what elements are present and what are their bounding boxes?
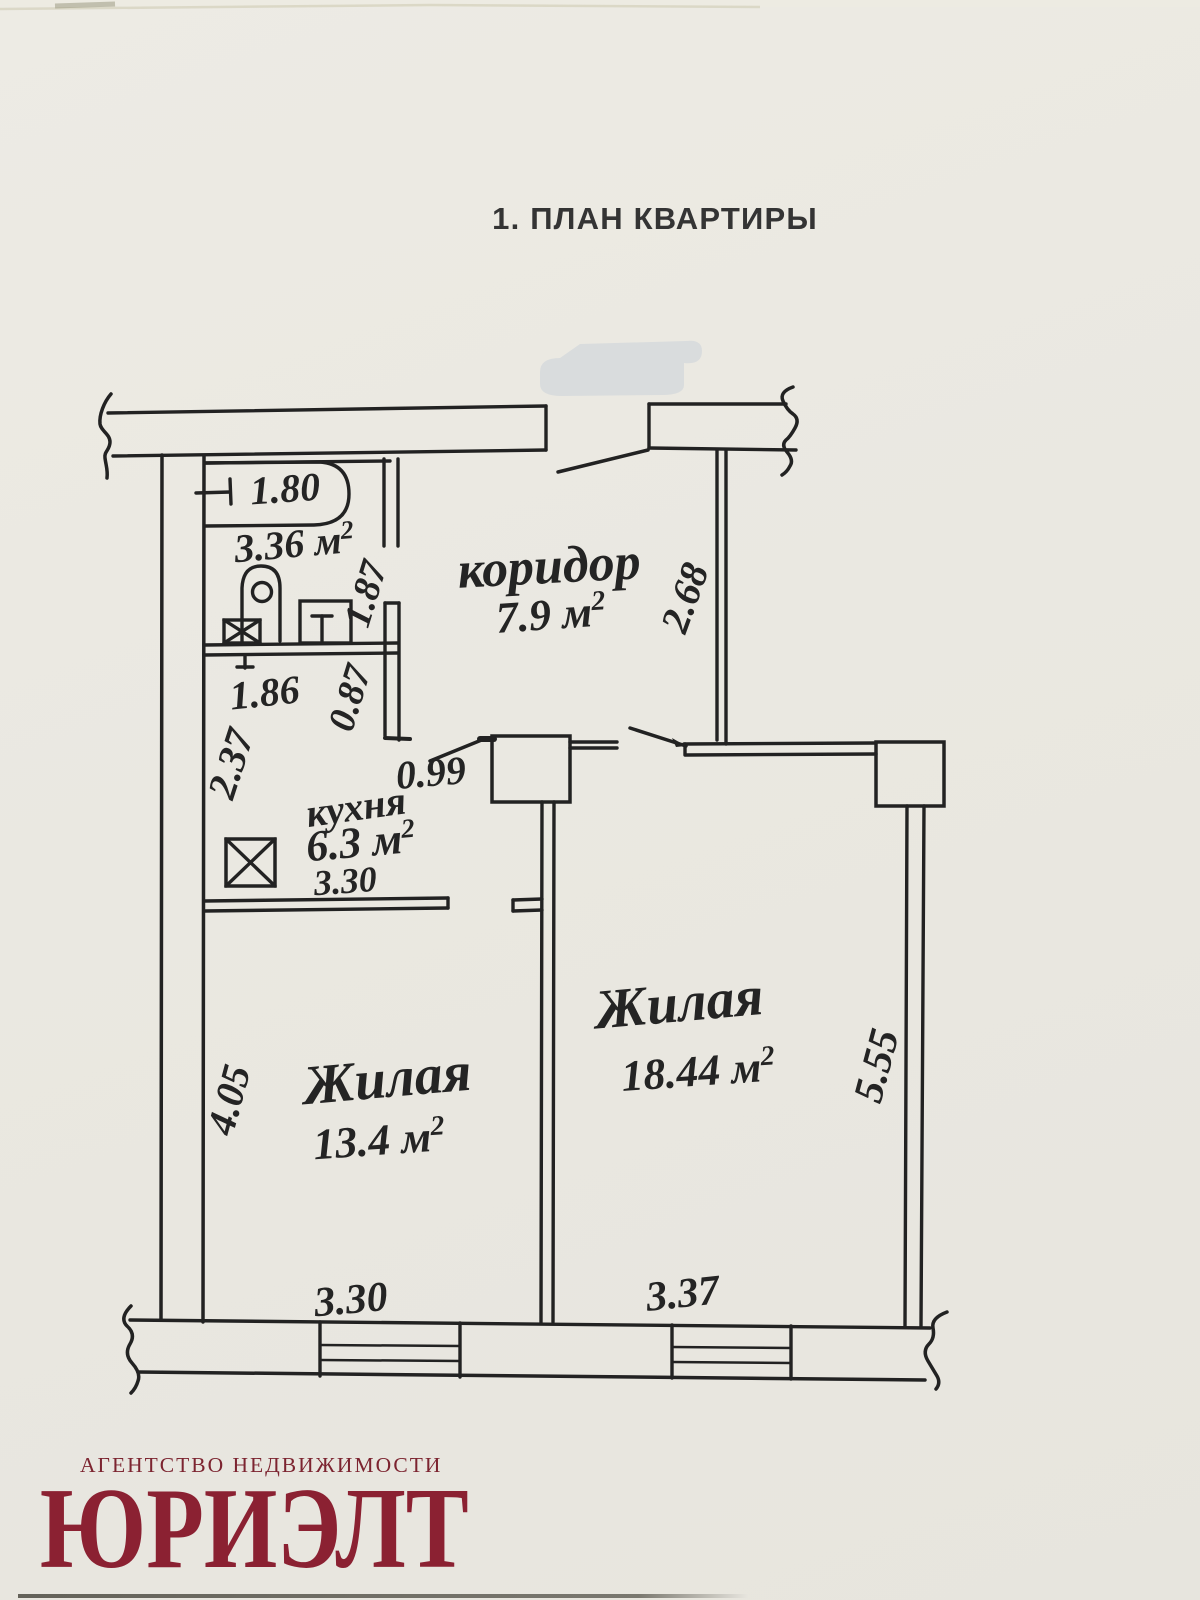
svg-text:0.99: 0.99 <box>394 747 468 798</box>
svg-text:7.9 м2: 7.9 м2 <box>494 585 607 643</box>
svg-text:0.87: 0.87 <box>320 658 380 736</box>
svg-text:3.30: 3.30 <box>311 859 378 903</box>
svg-text:2.68: 2.68 <box>651 557 718 639</box>
svg-text:1.87: 1.87 <box>336 554 396 632</box>
svg-text:ЮРИЭЛТ: ЮРИЭЛТ <box>40 1464 469 1592</box>
svg-text:1.80: 1.80 <box>249 464 322 514</box>
svg-text:13.4 м2: 13.4 м2 <box>311 1110 446 1169</box>
svg-text:3.30: 3.30 <box>311 1274 389 1326</box>
svg-text:3.36 м2: 3.36 м2 <box>231 515 356 571</box>
svg-text:4.05: 4.05 <box>198 1060 260 1140</box>
svg-text:3.37: 3.37 <box>643 1267 724 1321</box>
svg-text:Жилая: Жилая <box>297 1041 474 1118</box>
svg-text:Жилая: Жилая <box>589 965 766 1042</box>
svg-text:2.37: 2.37 <box>198 721 263 804</box>
svg-text:1. ПЛАН КВАРТИРЫ: 1. ПЛАН КВАРТИРЫ <box>492 201 818 236</box>
svg-text:5.55: 5.55 <box>845 1024 908 1107</box>
svg-text:1.86: 1.86 <box>227 667 301 719</box>
svg-text:18.44 м2: 18.44 м2 <box>620 1040 777 1101</box>
